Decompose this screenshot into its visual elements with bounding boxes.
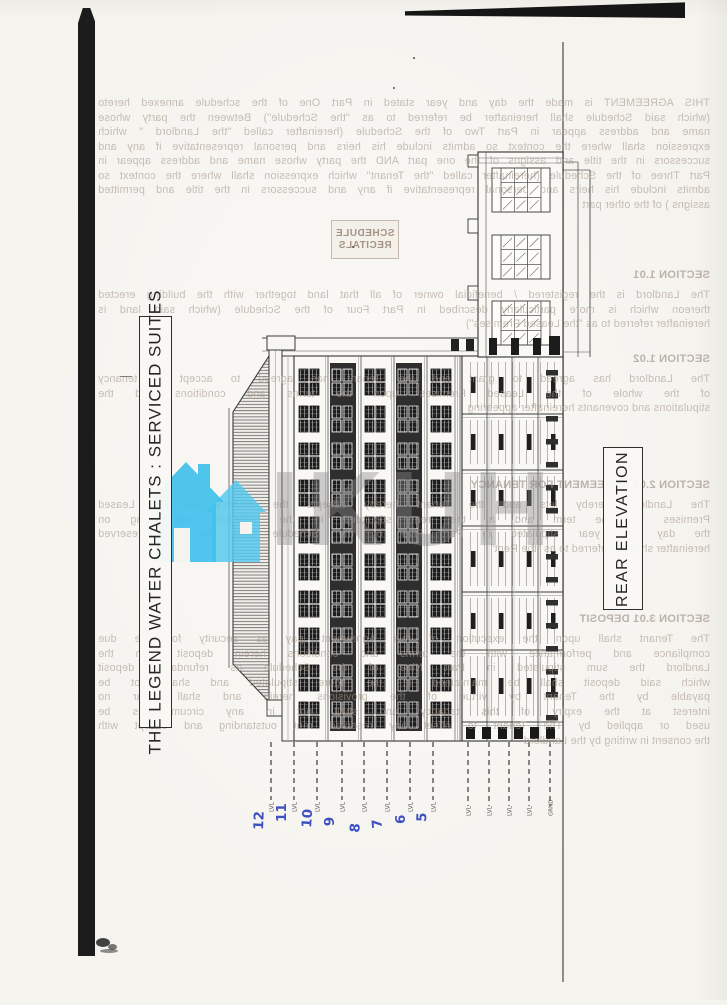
- drawing-title: THE LEGEND WATER CHALETS : SERVICED SUIT…: [146, 290, 166, 755]
- elevation-label-box: REAR ELEVATION: [603, 447, 643, 610]
- elevation-label: REAR ELEVATION: [614, 451, 632, 607]
- drawing-title-box: THE LEGEND WATER CHALETS : SERVICED SUIT…: [139, 316, 172, 728]
- printed-boxes-layer: THE LEGEND WATER CHALETS : SERVICED SUIT…: [0, 0, 727, 1000]
